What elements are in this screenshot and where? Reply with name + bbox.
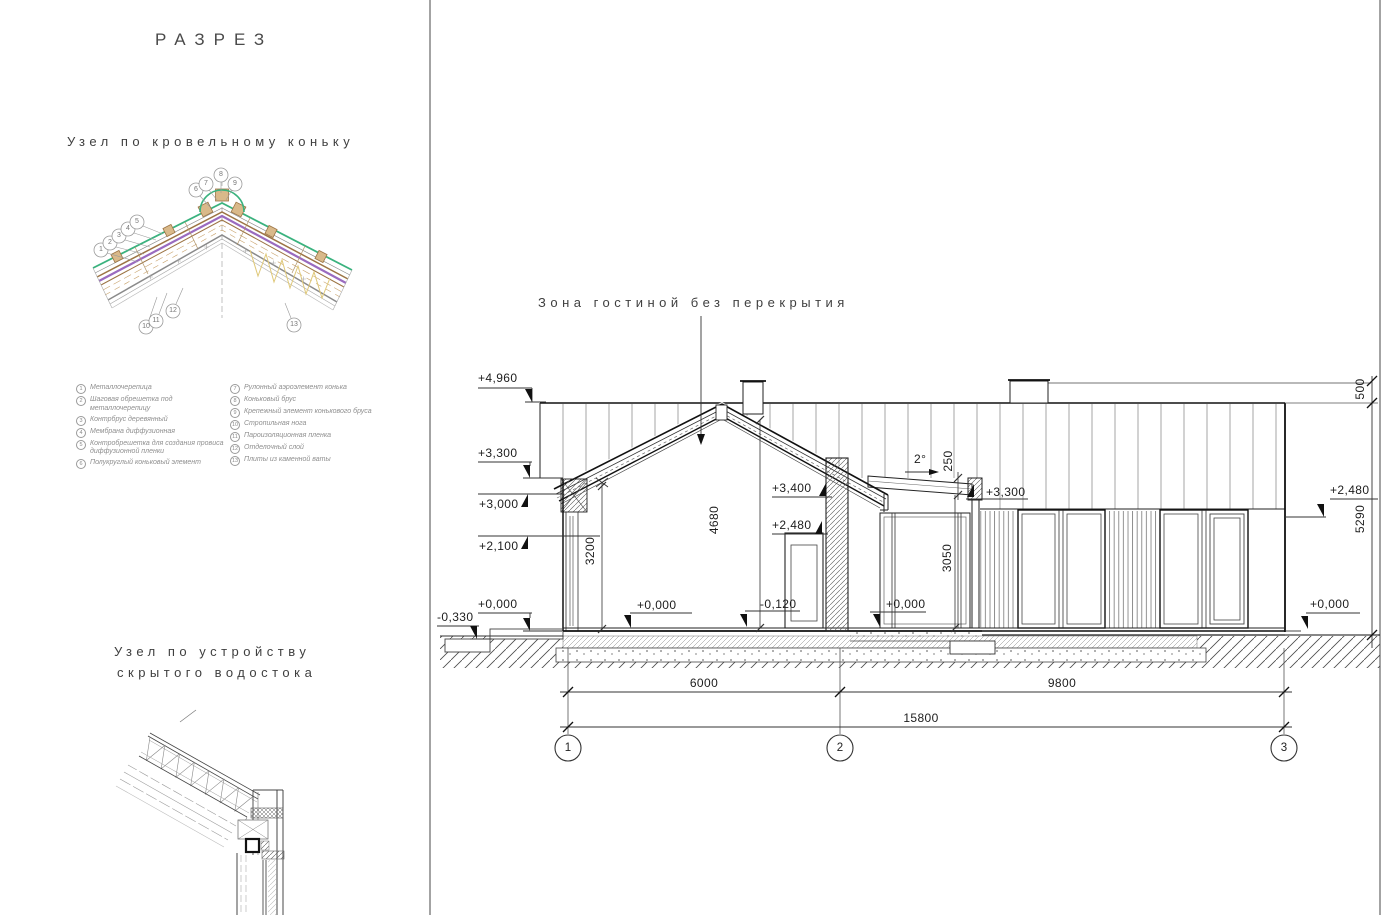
legend-num-10: 10: [230, 420, 240, 430]
sheet-title: РАЗРЕЗ: [155, 30, 273, 50]
elevation-0-interior: +0,000: [637, 598, 676, 612]
drawing-sheet: РАЗРЕЗ Узел по кровельному коньку Узел п…: [0, 0, 1383, 915]
elevation-0-terrace: +0,000: [886, 597, 925, 611]
dim-15800: 15800: [903, 711, 938, 725]
legend-text-3: Контрбрус деревянный: [90, 416, 168, 425]
legend-item-10: 10Стропильная нога: [230, 420, 388, 430]
legend-text-1: Металлочерепица: [90, 384, 152, 393]
elevation-3000: +3,000: [479, 497, 518, 511]
dim-6000: 6000: [690, 676, 718, 690]
legend-item-13: 13Плиты из каменной ваты: [230, 456, 388, 466]
callout-13: 13: [287, 318, 301, 332]
legend-num-9: 9: [230, 408, 240, 418]
legend-num-13: 13: [230, 456, 240, 466]
legend-item-11: 11Пароизоляционная пленка: [230, 432, 388, 442]
legend-num-11: 11: [230, 432, 240, 442]
legend-text-4: Мембрана диффузионная: [90, 428, 175, 437]
elevation-0-right: +0,000: [1310, 597, 1349, 611]
legend-num-5: 5: [76, 440, 86, 450]
callout-8: 8: [214, 168, 228, 182]
dim-3050: 3050: [940, 544, 954, 572]
axis-bubble-2: 2: [827, 741, 853, 756]
ridge-detail-drawing: [93, 168, 352, 334]
ridge-legend-left: 1Металлочерепица 2Шаговая обрешетка под …: [76, 384, 228, 471]
axis-bubble-3: 3: [1271, 741, 1297, 756]
dim-500: 500: [1353, 378, 1367, 399]
legend-num-12: 12: [230, 444, 240, 454]
main-section-drawing: [437, 316, 1380, 761]
callout-12: 12: [166, 304, 180, 318]
dim-4680: 4680: [707, 506, 721, 534]
ridge-legend-right: 7Рулонный аэроэлемент конька 8Коньковый …: [230, 384, 388, 468]
elevation-2100: +2,100: [479, 539, 518, 553]
elevation-0-left: +0,000: [478, 597, 517, 611]
legend-text-11: Пароизоляционная пленка: [244, 432, 331, 441]
callout-11: 11: [149, 314, 163, 328]
elevation-4960: +4,960: [478, 371, 517, 385]
legend-item-12: 12Отделочный слой: [230, 444, 388, 454]
legend-num-1: 1: [76, 384, 86, 394]
callout-7: 7: [199, 177, 213, 191]
legend-item-4: 4Мембрана диффузионная: [76, 428, 228, 438]
dim-250: 250: [941, 450, 955, 471]
gutter-detail-drawing: [116, 710, 284, 915]
ridge-detail-heading: Узел по кровельному коньку: [67, 134, 354, 149]
elevation-3300-right: +3,300: [986, 485, 1025, 499]
slope-label: 2°: [914, 452, 926, 466]
elevation-3300-left: +3,300: [478, 446, 517, 460]
legend-item-8: 8Коньковый брус: [230, 396, 388, 406]
elevation-minus330: -0,330: [437, 610, 473, 624]
dim-9800: 9800: [1048, 676, 1076, 690]
axis-bubble-1: 1: [555, 741, 581, 756]
legend-num-8: 8: [230, 396, 240, 406]
legend-num-3: 3: [76, 416, 86, 426]
legend-item-5: 5Контробрешетка для создания провиса диф…: [76, 440, 228, 458]
legend-item-9: 9Крепежный элемент конькового бруса: [230, 408, 388, 418]
elevation-3400: +3,400: [772, 481, 811, 495]
gutter-detail-heading-line1: Узел по устройству: [114, 644, 310, 659]
legend-text-8: Коньковый брус: [244, 396, 296, 405]
legend-item-3: 3Контрбрус деревянный: [76, 416, 228, 426]
legend-text-5: Контробрешетка для создания провиса дифф…: [90, 440, 228, 458]
zone-label: Зона гостиной без перекрытия: [538, 295, 849, 310]
flat-roof-chimney: [1008, 380, 1371, 403]
legend-num-2: 2: [76, 396, 86, 406]
legend-num-6: 6: [76, 459, 86, 469]
callout-9: 9: [228, 177, 242, 191]
dim-5290: 5290: [1353, 505, 1367, 533]
legend-num-7: 7: [230, 384, 240, 394]
elevation-minus120: -0,120: [760, 597, 796, 611]
legend-num-4: 4: [76, 428, 86, 438]
callout-5: 5: [130, 215, 144, 229]
elevation-2480-right: +2,480: [1330, 483, 1369, 497]
legend-text-6: Полукруглый коньковый элемент: [90, 459, 201, 468]
elevation-2480-mid: +2,480: [772, 518, 811, 532]
legend-text-2: Шаговая обрешетка под металлочерепицу: [90, 396, 228, 414]
legend-text-7: Рулонный аэроэлемент конька: [244, 384, 347, 393]
legend-text-13: Плиты из каменной ваты: [244, 456, 331, 465]
legend-text-12: Отделочный слой: [244, 444, 304, 453]
legend-text-9: Крепежный элемент конькового бруса: [244, 408, 372, 417]
legend-item-1: 1Металлочерепица: [76, 384, 228, 394]
legend-item-7: 7Рулонный аэроэлемент конька: [230, 384, 388, 394]
legend-item-6: 6Полукруглый коньковый элемент: [76, 459, 228, 469]
gutter-detail-heading-line2: скрытого водостока: [117, 665, 316, 680]
dim-3200: 3200: [583, 537, 597, 565]
legend-text-10: Стропильная нога: [244, 420, 306, 429]
legend-item-2: 2Шаговая обрешетка под металлочерепицу: [76, 396, 228, 414]
